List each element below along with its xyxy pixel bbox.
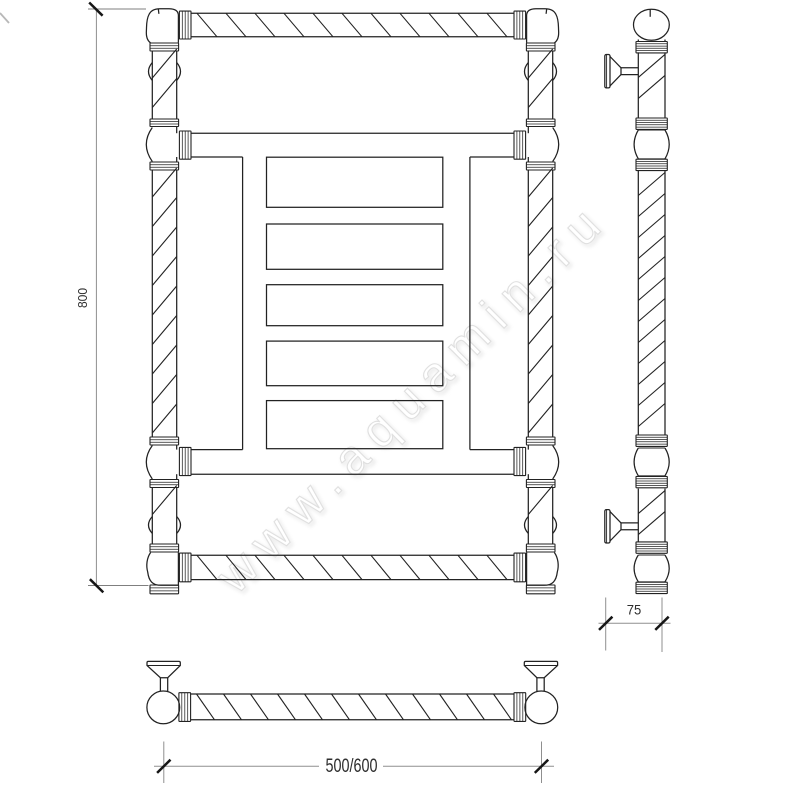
svg-text:800: 800 xyxy=(75,288,90,308)
svg-text:500/600: 500/600 xyxy=(326,756,378,777)
svg-text:75: 75 xyxy=(627,602,642,618)
svg-text:www.aquamin.ru: www.aquamin.ru xyxy=(206,190,620,604)
